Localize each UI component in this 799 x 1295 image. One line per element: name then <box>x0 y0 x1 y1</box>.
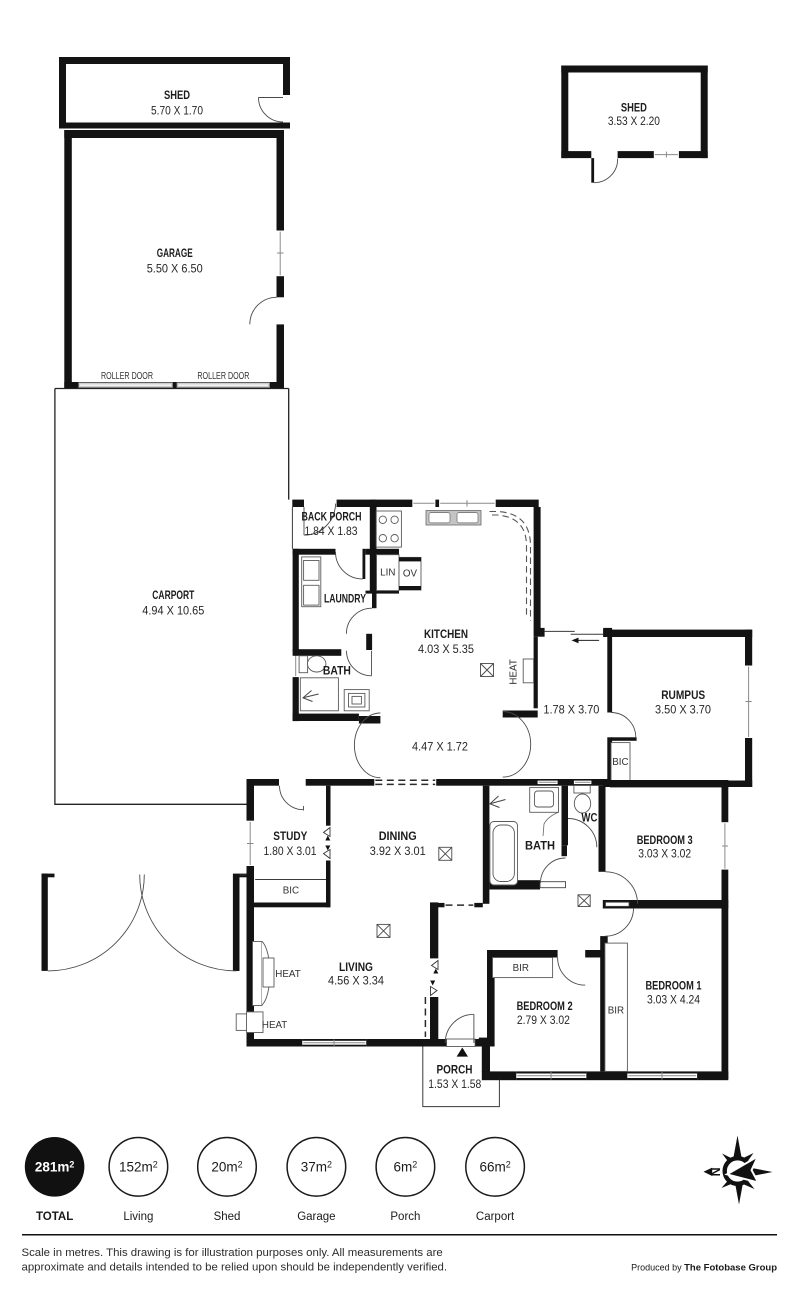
svg-text:BEDROOM 1: BEDROOM 1 <box>646 981 702 993</box>
svg-text:3.50 X 3.70: 3.50 X 3.70 <box>655 703 711 717</box>
svg-text:RUMPUS: RUMPUS <box>661 690 705 702</box>
svg-text:281m2: 281m2 <box>35 1160 75 1175</box>
svg-text:Porch: Porch <box>390 1211 420 1223</box>
svg-text:OV: OV <box>403 569 418 580</box>
svg-text:5.50 X 6.50: 5.50 X 6.50 <box>147 262 203 276</box>
svg-text:HEAT: HEAT <box>509 659 520 684</box>
svg-text:DINING: DINING <box>379 831 417 843</box>
svg-text:4.03 X 5.35: 4.03 X 5.35 <box>418 642 474 656</box>
svg-text:SHED: SHED <box>621 103 647 115</box>
svg-text:4.47 X 1.72: 4.47 X 1.72 <box>412 740 468 754</box>
svg-text:ROLLER DOOR: ROLLER DOOR <box>101 371 153 382</box>
svg-text:BATH: BATH <box>525 840 555 852</box>
svg-text:Produced by The Fotobase Group: Produced by The Fotobase Group <box>631 1263 777 1274</box>
svg-text:N: N <box>709 1167 723 1176</box>
svg-text:3.53 X 2.20: 3.53 X 2.20 <box>608 114 660 128</box>
svg-text:1.80 X 3.01: 1.80 X 3.01 <box>264 844 317 858</box>
svg-text:KITCHEN: KITCHEN <box>424 629 468 641</box>
svg-text:BIR: BIR <box>513 963 529 974</box>
svg-text:1.84 X 1.83: 1.84 X 1.83 <box>305 524 358 538</box>
svg-text:TOTAL: TOTAL <box>36 1211 73 1223</box>
svg-text:HEAT: HEAT <box>275 969 300 980</box>
svg-text:BEDROOM 2: BEDROOM 2 <box>517 1001 573 1013</box>
svg-text:Shed: Shed <box>214 1211 241 1223</box>
svg-text:1.78 X 3.70: 1.78 X 3.70 <box>543 703 599 717</box>
svg-text:HEAT: HEAT <box>262 1020 287 1031</box>
svg-text:LAUNDRY: LAUNDRY <box>324 594 366 606</box>
svg-text:3.03 X 3.02: 3.03 X 3.02 <box>638 847 691 861</box>
svg-text:Scale in metres. This drawing: Scale in metres. This drawing is for ill… <box>22 1247 443 1259</box>
svg-text:approximate and details intend: approximate and details intended to be r… <box>22 1262 448 1274</box>
svg-text:LIN: LIN <box>380 568 395 579</box>
svg-text:5.70 X 1.70: 5.70 X 1.70 <box>151 104 203 118</box>
svg-text:STUDY: STUDY <box>273 831 307 843</box>
svg-text:BIR: BIR <box>608 1006 624 1017</box>
svg-text:BATH: BATH <box>323 666 351 678</box>
svg-text:BEDROOM 3: BEDROOM 3 <box>637 835 693 847</box>
svg-text:BIC: BIC <box>612 757 628 768</box>
svg-text:Living: Living <box>123 1211 153 1223</box>
svg-text:CARPORT: CARPORT <box>152 590 194 602</box>
svg-text:BACK PORCH: BACK PORCH <box>302 512 362 524</box>
svg-text:Carport: Carport <box>476 1211 515 1223</box>
svg-text:152m2: 152m2 <box>119 1160 158 1175</box>
svg-text:ROLLER DOOR: ROLLER DOOR <box>197 371 249 382</box>
svg-text:3.03 X 4.24: 3.03 X 4.24 <box>647 993 700 1007</box>
svg-text:PORCH: PORCH <box>437 1064 473 1076</box>
svg-text:2.79 X 3.02: 2.79 X 3.02 <box>517 1013 570 1027</box>
svg-text:SHED: SHED <box>164 90 190 102</box>
svg-text:4.56 X 3.34: 4.56 X 3.34 <box>328 974 384 988</box>
svg-text:3.92 X 3.01: 3.92 X 3.01 <box>370 844 426 858</box>
svg-text:GARAGE: GARAGE <box>157 248 193 260</box>
svg-text:Garage: Garage <box>297 1211 335 1223</box>
svg-text:1.53 X 1.58: 1.53 X 1.58 <box>428 1077 481 1091</box>
svg-text:WC: WC <box>581 813 597 825</box>
svg-text:LIVING: LIVING <box>339 962 373 974</box>
svg-text:4.94 X 10.65: 4.94 X 10.65 <box>142 604 204 618</box>
svg-text:BIC: BIC <box>283 886 299 897</box>
